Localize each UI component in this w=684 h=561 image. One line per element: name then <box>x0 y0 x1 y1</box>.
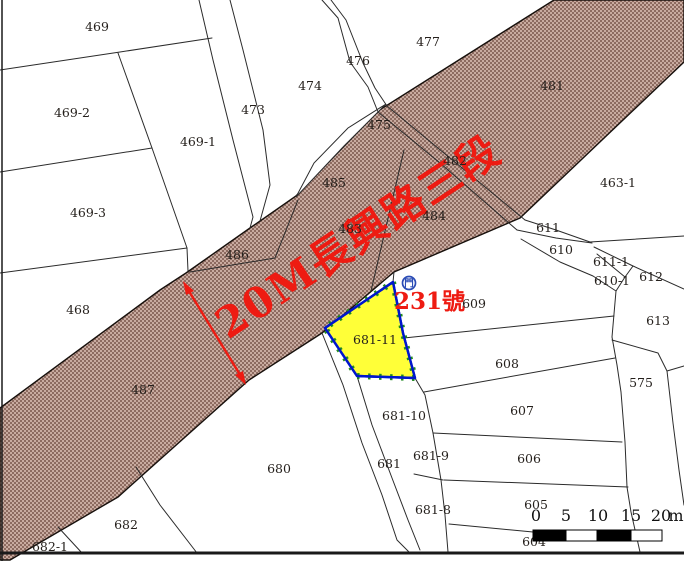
parcel-label-487: 487 <box>131 382 155 397</box>
parcel-label-469-3: 469-3 <box>70 205 106 220</box>
parcel-label-483: 483 <box>338 221 362 236</box>
parcel-label-607: 607 <box>510 403 534 418</box>
scale-tick-5: 5 <box>561 506 571 525</box>
road-band-polygon <box>0 0 684 560</box>
parcel-label-482: 482 <box>443 153 467 168</box>
scale-bar-segment <box>631 530 662 541</box>
parcel-label-681-10: 681-10 <box>382 408 426 423</box>
parcel-label-682: 682 <box>114 517 138 532</box>
parcel-label-468: 468 <box>66 302 90 317</box>
parcel-label-473: 473 <box>241 102 265 117</box>
address-number-label: 231號 <box>394 288 465 315</box>
parcel-label-680: 680 <box>267 461 291 476</box>
parcel-label-609: 609 <box>462 296 486 311</box>
parcel-label-610: 610 <box>549 242 573 257</box>
parcel-label-481: 481 <box>540 78 564 93</box>
parcel-label-681-9: 681-9 <box>413 448 449 463</box>
parcel-label-681-8: 681-8 <box>415 502 451 517</box>
parcel-label-469-2: 469-2 <box>54 105 90 120</box>
parcel-label-611-1: 611-1 <box>593 254 629 269</box>
address-marker[interactable]: 門 231號 <box>394 277 465 316</box>
parcel-label-484: 484 <box>422 208 446 223</box>
parcel-label-469: 469 <box>85 19 109 34</box>
parcel-label-610-1: 610-1 <box>594 273 630 288</box>
parcel-label-463-1: 463-1 <box>600 175 636 190</box>
scale-bar-ticks: 05101520m <box>531 506 684 525</box>
parcel-label-485: 485 <box>322 175 346 190</box>
scale-bar: 05101520m <box>531 506 684 541</box>
scale-bar-segment <box>566 530 597 541</box>
parcel-label-606: 606 <box>517 451 541 466</box>
parcel-label-486: 486 <box>225 247 249 262</box>
scale-tick-0: 0 <box>531 506 541 525</box>
scale-unit-label: m <box>668 506 683 525</box>
parcel-label-681-11: 681-11 <box>353 332 397 347</box>
parcel-label-469-1: 469-1 <box>180 134 216 149</box>
parcel-label-477: 477 <box>416 34 440 49</box>
parcel-label-608: 608 <box>495 356 519 371</box>
scale-tick-10: 10 <box>588 506 608 525</box>
parcel-label-476: 476 <box>346 53 370 68</box>
cadastral-map: 20M長興路三段 門 231號 469469-2469-3469-1473474… <box>0 0 684 561</box>
scale-bar-segment <box>533 530 566 541</box>
parcel-label-613: 613 <box>646 313 670 328</box>
parcel-label-475: 475 <box>367 117 391 132</box>
parcel-label-612: 612 <box>639 269 663 284</box>
cadastral-map-stage: 20M長興路三段 門 231號 469469-2469-3469-1473474… <box>0 0 684 561</box>
parcel-label-575: 575 <box>629 375 653 390</box>
parcel-label-611: 611 <box>536 220 560 235</box>
scale-bar-segment <box>597 530 631 541</box>
parcel-label-474: 474 <box>298 78 322 93</box>
scale-tick-15: 15 <box>621 506 641 525</box>
parcel-label-681: 681 <box>377 456 401 471</box>
